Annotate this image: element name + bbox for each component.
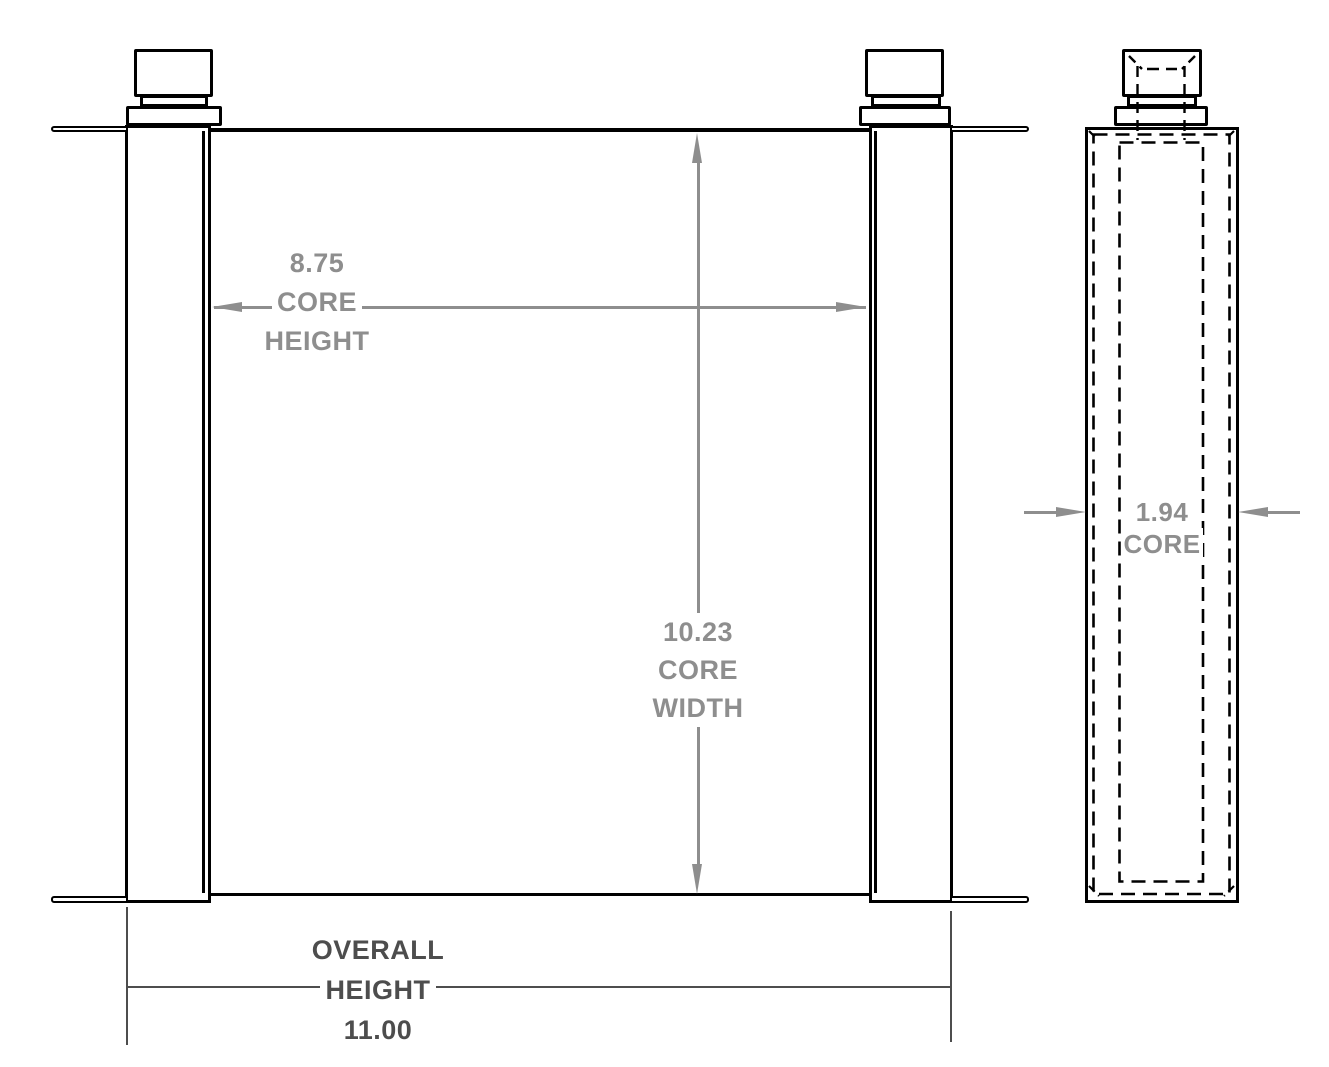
core-width-dim-line — [697, 160, 700, 865]
core-width-dim-label: 10.23 CORE WIDTH — [618, 613, 778, 727]
core-height-dim-label: 8.75 CORE HEIGHT — [237, 244, 397, 361]
core-height-label-1: CORE — [272, 283, 362, 322]
core-width-arrow-down — [692, 864, 702, 894]
cap-chamfer-hidden-left — [1129, 56, 1142, 69]
core-width-value: 10.23 — [658, 613, 738, 651]
core-height-arrow-right — [836, 302, 866, 312]
technical-drawing-canvas: 8.75 CORE HEIGHT 10.23 CORE WIDTH OVERAL… — [0, 0, 1329, 1067]
core-width-arrow-up — [692, 133, 702, 163]
overall-height-dim-line — [127, 986, 951, 989]
overall-height-value: 11.00 — [339, 1010, 418, 1050]
core-depth-value: 1.94 — [1134, 496, 1191, 528]
core-depth-arrow-right — [1238, 507, 1268, 517]
core-height-label-2: HEIGHT — [259, 322, 374, 361]
core-depth-label-1: CORE — [1121, 528, 1202, 560]
overall-height-label-2: HEIGHT — [320, 970, 435, 1010]
overall-height-label-1: OVERALL — [307, 930, 450, 970]
core-depth-dim-label: 1.94 CORE — [1082, 496, 1242, 560]
cap-chamfer-hidden-right — [1182, 56, 1195, 69]
core-depth-leader-right — [1266, 511, 1300, 514]
core-depth-leader-left — [1024, 511, 1058, 514]
overall-height-extension-left — [126, 907, 129, 1045]
core-width-label-1: CORE — [653, 651, 743, 689]
overall-height-dim-label: OVERALL HEIGHT 11.00 — [288, 930, 468, 1050]
core-height-value: 8.75 — [285, 244, 350, 283]
overall-height-extension-right — [950, 911, 953, 1042]
core-width-label-2: WIDTH — [648, 689, 749, 727]
